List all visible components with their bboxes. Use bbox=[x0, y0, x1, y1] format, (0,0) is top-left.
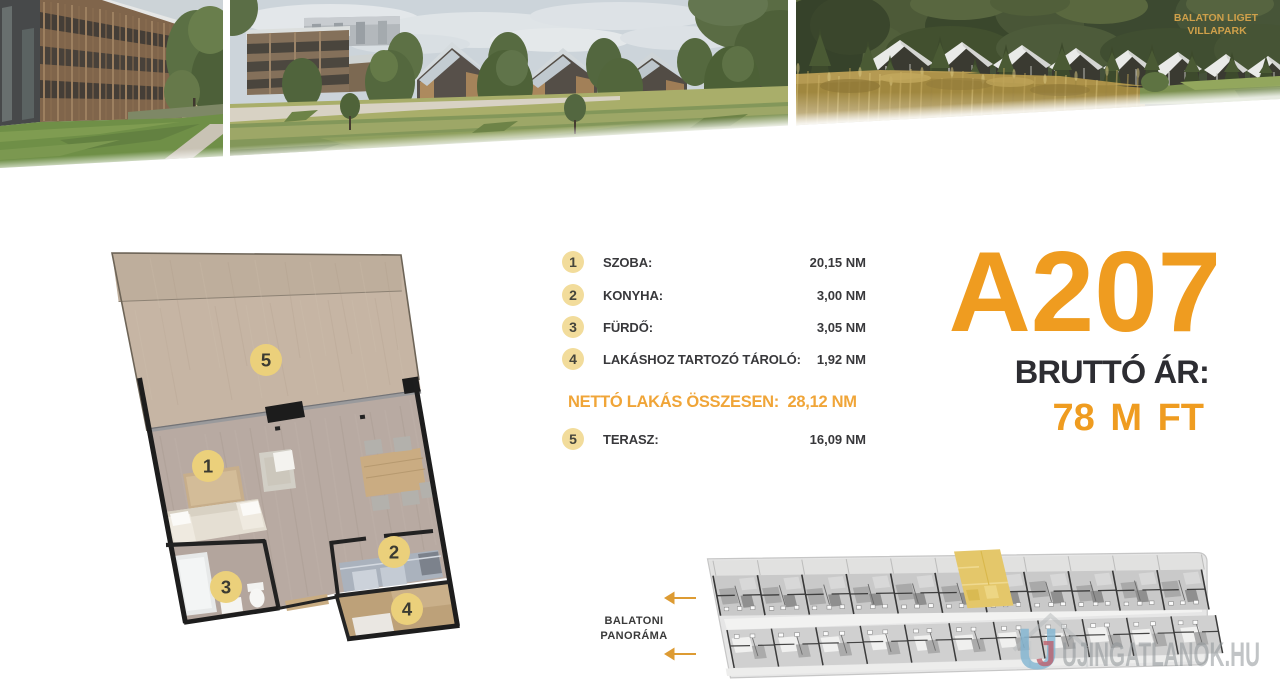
svg-text:3: 3 bbox=[221, 577, 231, 598]
svg-text:4: 4 bbox=[402, 599, 413, 620]
svg-text:5: 5 bbox=[261, 350, 271, 371]
svg-text:1: 1 bbox=[203, 456, 213, 477]
svg-text:2: 2 bbox=[389, 542, 399, 563]
svg-text:ÚJINGATLANOK.HU: ÚJINGATLANOK.HU bbox=[1062, 636, 1260, 674]
svg-text:J: J bbox=[1036, 633, 1056, 674]
